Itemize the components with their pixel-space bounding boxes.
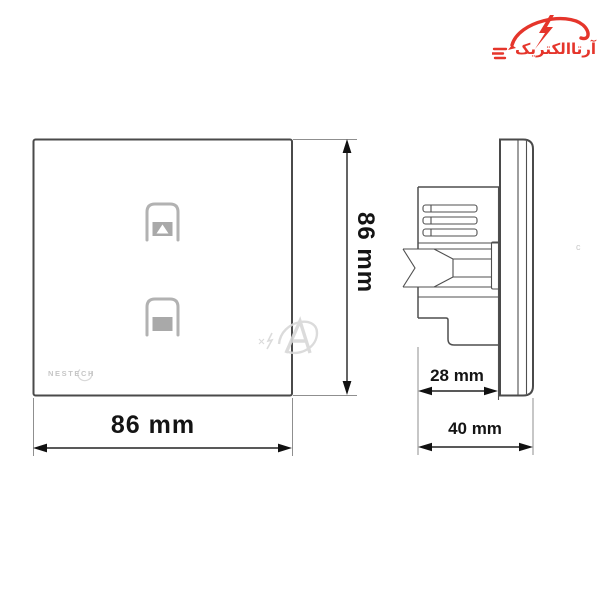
front-panel-outline (34, 140, 293, 396)
nestech-brand-text: NESTECH (48, 369, 95, 378)
arta-electric-logo: آرتاالکتریک (492, 12, 596, 68)
side-view (403, 140, 533, 401)
wall-break-symbol (403, 249, 492, 287)
side-panel-outline (500, 140, 533, 396)
brand-logo-text: آرتاالکتریک (492, 40, 596, 58)
watermark-letter: c (576, 242, 581, 252)
front-width-label: 86 mm (92, 411, 214, 440)
technical-drawing (0, 0, 600, 600)
front-view (34, 140, 318, 396)
body-depth-label: 28 mm (416, 366, 498, 386)
body-lower-step (418, 318, 498, 345)
product-dimension-diagram: 86 mm 86 mm 28 mm 40 mm NESTECH c آرتاال… (0, 0, 600, 600)
front-height-label: 86 mm (351, 212, 379, 293)
vent-slots-icon (423, 205, 477, 236)
total-depth-label: 40 mm (434, 419, 516, 439)
